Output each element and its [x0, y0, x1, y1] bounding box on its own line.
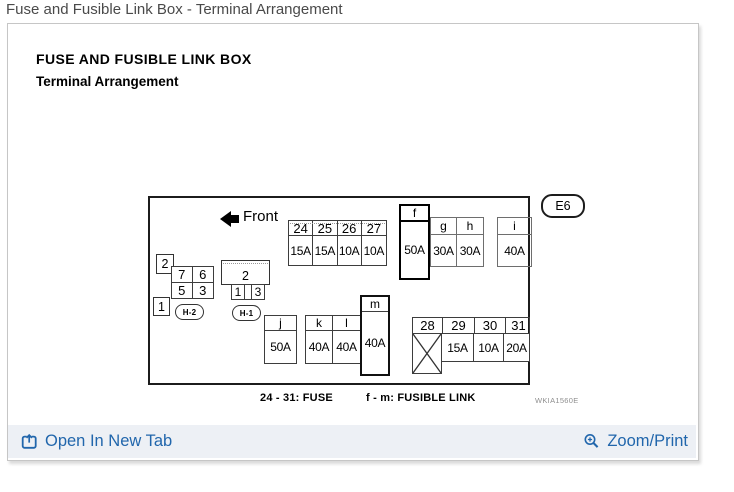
- fusible-link-k-amp: 40A: [306, 331, 333, 363]
- fuse-25-amp: 15A: [313, 236, 337, 265]
- fuse-30-id: 30: [475, 318, 506, 333]
- fuse-30-amp: 10A: [473, 333, 504, 362]
- fuse-31-id: 31: [506, 318, 531, 333]
- diagram-subheading: Terminal Arrangement: [36, 74, 179, 89]
- fusible-link-g-amp: 30A: [431, 235, 457, 266]
- fuse-28-crossed-cell: [412, 333, 442, 374]
- relay-h2-grid: 7 6 5 3: [171, 266, 214, 299]
- relay-h2-tag-1: 1: [153, 297, 170, 316]
- fusible-link-m: m 40A: [360, 295, 390, 376]
- fusible-link-j-amp: 50A: [265, 331, 296, 363]
- relay-h2-cell-3: 3: [193, 283, 214, 298]
- fuse-27-amp: 10A: [362, 236, 386, 265]
- fusible-link-m-label: m: [362, 297, 388, 312]
- diagram-heading: FUSE AND FUSIBLE LINK BOX: [36, 51, 252, 67]
- fusible-link-i-label: i: [498, 218, 531, 235]
- relay-h1-cell-1: 1: [232, 285, 245, 299]
- page-title: Fuse and Fusible Link Box - Terminal Arr…: [6, 1, 343, 18]
- fusible-link-g-label: g: [431, 218, 457, 235]
- fusible-link-f-label: f: [401, 206, 428, 222]
- fuse-table-28-31-header: 28 29 30 31: [412, 317, 530, 334]
- fusible-link-kl-table: k l 40A 40A: [305, 315, 361, 364]
- legend-fusible-link: f - m: FUSIBLE LINK: [366, 392, 476, 404]
- zoom-print-icon: [583, 433, 600, 450]
- relay-h1-cell-gap: [245, 285, 252, 299]
- zoom-print-link[interactable]: Zoom/Print: [583, 425, 688, 458]
- open-in-new-tab-link[interactable]: Open In New Tab: [21, 425, 172, 458]
- relay-h1-top-label: 2: [242, 269, 249, 283]
- relay-h2-badge: H-2: [175, 304, 204, 320]
- relay-h1-top-box: 2: [221, 260, 270, 285]
- legend-fuse: 24 - 31: FUSE: [260, 392, 333, 404]
- fuse-29-id: 29: [443, 318, 475, 333]
- fuse-table-dotted-line: [290, 223, 385, 224]
- fuse-24-amp: 15A: [289, 236, 313, 265]
- fusible-link-l-label: l: [333, 316, 360, 331]
- fusible-link-k-label: k: [306, 316, 333, 331]
- relay-h1-dotted-line: [223, 263, 268, 264]
- front-label: Front: [243, 208, 278, 225]
- fuse-table-24-27: 24 25 26 27 15A 15A 10A 10A: [288, 220, 387, 266]
- relay-h1-badge: H-1: [232, 305, 261, 321]
- fusible-link-gh-table: g h 30A 30A: [430, 217, 484, 267]
- fusible-link-i: i 40A: [497, 217, 532, 267]
- image-watermark: WKIA1560E: [535, 396, 579, 405]
- connector-badge-e6: E6: [541, 194, 585, 218]
- fusible-link-i-amp: 40A: [498, 235, 531, 266]
- fusible-link-j-label: j: [265, 316, 296, 331]
- relay-h2-cell-7: 7: [172, 267, 193, 283]
- fuse-29-amp: 15A: [441, 333, 474, 362]
- open-in-new-tab-icon: [21, 433, 38, 450]
- fusible-link-l-amp: 40A: [333, 331, 360, 363]
- fuse-31-amp: 20A: [503, 333, 530, 362]
- fuse-26-amp: 10A: [338, 236, 362, 265]
- fusible-link-j: j 50A: [264, 315, 297, 364]
- relay-h1-cell-3: 3: [252, 285, 264, 299]
- front-arrow-tail: [231, 215, 239, 223]
- footer-action-bar: Open In New Tab Zoom/Print: [8, 425, 696, 458]
- fusible-link-f: f 50A: [399, 204, 430, 280]
- fusible-link-f-amp: 50A: [401, 222, 428, 278]
- fuse-box-diagram: Front 24 25 26 27 15A 15A 10A 10A f 50A …: [148, 196, 530, 385]
- x-cross-icon: [413, 334, 441, 373]
- fusible-link-m-amp: 40A: [362, 312, 388, 374]
- relay-h1-cells: 1 3: [231, 284, 265, 300]
- front-arrow-icon: [220, 211, 231, 227]
- fuse-28-id: 28: [413, 318, 443, 333]
- relay-h2-cell-6: 6: [193, 267, 214, 283]
- fusible-link-h-amp: 30A: [457, 235, 483, 266]
- relay-h2-cell-5: 5: [172, 283, 193, 298]
- open-in-new-tab-label: Open In New Tab: [45, 432, 172, 451]
- zoom-print-label: Zoom/Print: [607, 432, 688, 451]
- fusible-link-h-label: h: [457, 218, 483, 235]
